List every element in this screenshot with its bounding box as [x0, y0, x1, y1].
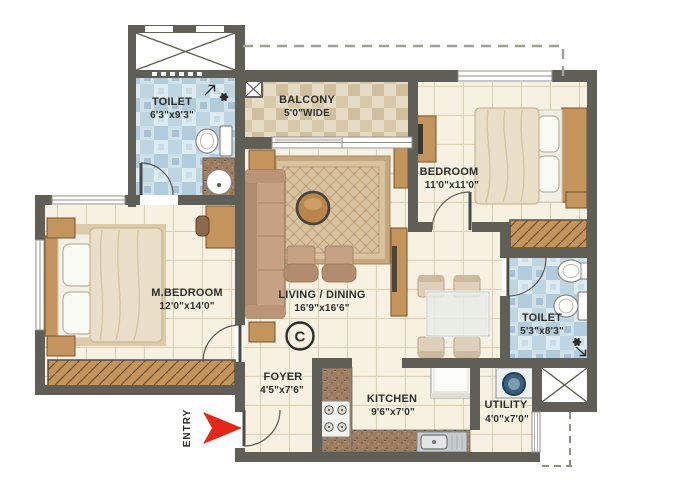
kitchen-dims: 9'6"x7'0" [371, 407, 415, 418]
coffee-table [297, 192, 329, 224]
toilet-top-dims: 6'3"x9'3" [150, 110, 194, 121]
armchair [284, 246, 318, 282]
dining-table [427, 292, 489, 336]
toilet-right-label: TOILET [522, 312, 562, 324]
pillow [538, 156, 559, 192]
toilet-right-dims: 5'3"x8'3" [520, 326, 564, 337]
balcony-label: BALCONY [279, 94, 335, 106]
bedroom-wardrobe [510, 220, 587, 248]
desk-chair [196, 216, 209, 236]
tv-console [391, 140, 408, 316]
sliding-window [272, 137, 412, 148]
side-table [249, 150, 275, 170]
bedroom-tv-unit [416, 116, 436, 162]
utility-label: UTILITY [485, 399, 528, 411]
sofa [245, 150, 285, 342]
toilet-top-label: TOILET [152, 96, 192, 108]
dining-chair [418, 337, 444, 358]
floor-plan: ENTRY TOILET 6'3"x9'3" BALCONY 5'0"WIDE … [0, 0, 700, 500]
headboard [562, 108, 587, 202]
bedroom-label: BEDROOM [420, 166, 479, 178]
sink-icon [417, 432, 467, 452]
dining-set [418, 275, 489, 358]
balcony-dims: 5'0"WIDE [284, 108, 330, 119]
utility-louver [532, 412, 540, 452]
pillow [63, 292, 93, 334]
hob-icon [321, 401, 350, 437]
living-dining-label: LIVING / DINING [278, 289, 365, 301]
nightstand [47, 336, 75, 356]
bedroom-side-table [566, 192, 587, 208]
washbasin-icon [558, 260, 588, 282]
window [458, 71, 552, 81]
utility-dims: 4'0"x7'0" [485, 414, 529, 425]
bedroom-bed [475, 108, 587, 204]
side-table [249, 322, 275, 342]
open-duct-dashed-line [542, 412, 572, 466]
window [36, 240, 44, 330]
dining-chair [454, 337, 480, 358]
master-bedroom-wardrobe [48, 360, 235, 386]
armchair [322, 246, 356, 282]
headboard [45, 236, 58, 336]
fridge-icon [431, 364, 471, 398]
copyright-letter: C [294, 329, 305, 346]
master-bedroom-bed [45, 224, 166, 346]
shaft-top-left [136, 26, 235, 74]
pillow [63, 244, 93, 286]
window [52, 196, 125, 204]
living-dining-dims: 16'9"x16'6" [294, 303, 349, 314]
master-bedroom-label: M.BEDROOM [151, 287, 222, 299]
shaft-bottom-right [542, 368, 587, 402]
pillow [538, 116, 559, 152]
nightstand [47, 218, 75, 238]
foyer-dims: 4'5"x7'6" [260, 385, 304, 396]
bedroom-dims: 11'0"x11'0" [425, 180, 479, 191]
entry-label: ENTRY [182, 409, 193, 448]
foyer-label: FOYER [264, 371, 303, 383]
balcony-duct [245, 81, 262, 97]
kitchen-label: KITCHEN [367, 393, 417, 405]
master-bedroom-dims: 12'0"x14'0" [159, 301, 214, 312]
entry-arrow-icon [203, 412, 242, 444]
balcony-floor [243, 82, 420, 137]
